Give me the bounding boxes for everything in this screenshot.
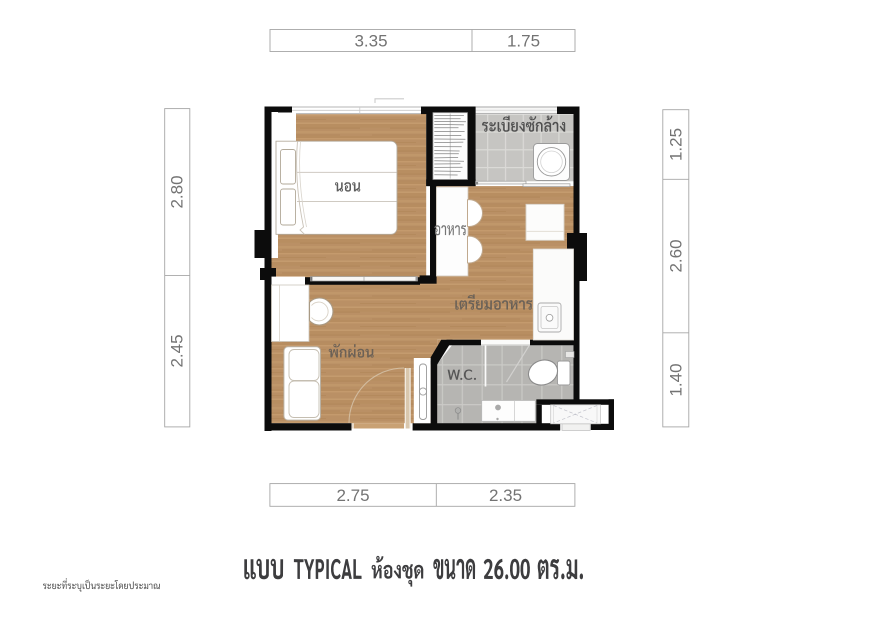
svg-text:2.45: 2.45 [168,334,187,367]
svg-text:1.40: 1.40 [667,363,686,396]
svg-text:2.80: 2.80 [168,175,187,208]
svg-text:3.35: 3.35 [354,32,387,51]
svg-text:1.75: 1.75 [507,32,540,51]
svg-text:2.60: 2.60 [667,239,686,272]
svg-text:1.25: 1.25 [667,128,686,161]
svg-text:2.75: 2.75 [336,486,369,505]
svg-text:2.35: 2.35 [489,486,522,505]
